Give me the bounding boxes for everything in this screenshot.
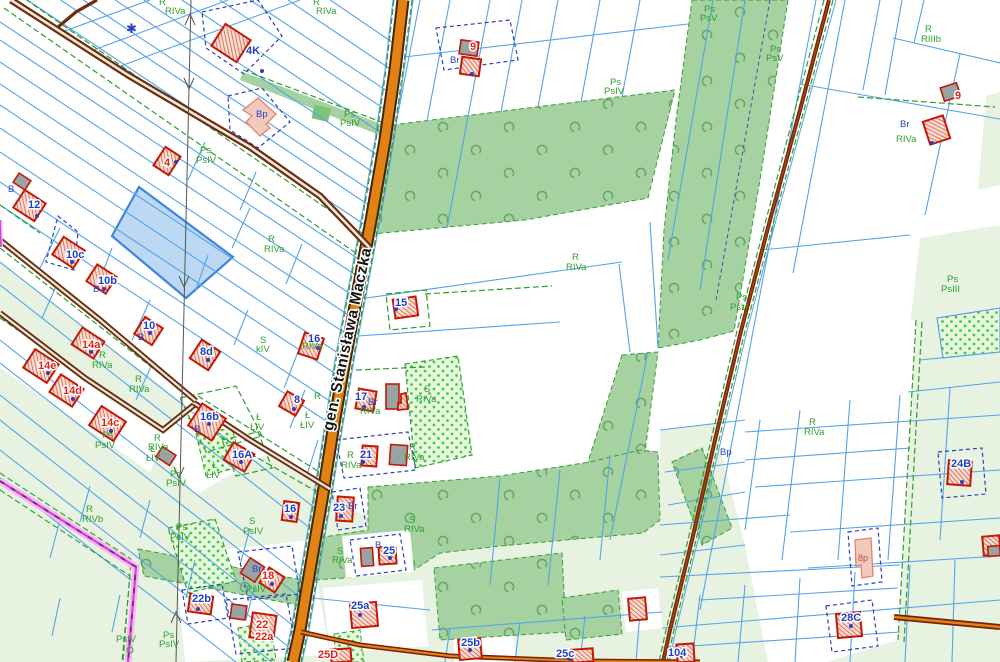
svg-text:Ps: Ps — [170, 469, 181, 480]
svg-text:12: 12 — [28, 199, 40, 211]
svg-text:10b: 10b — [98, 275, 117, 287]
svg-text:PsIV: PsIV — [243, 526, 264, 537]
svg-text:22b: 22b — [192, 593, 211, 605]
svg-text:Br: Br — [368, 397, 378, 408]
svg-text:RIVa: RIVa — [302, 341, 323, 352]
svg-text:8p: 8p — [858, 553, 868, 563]
svg-text:10: 10 — [143, 320, 155, 332]
svg-text:R: R — [86, 504, 93, 515]
svg-text:S: S — [409, 515, 415, 526]
svg-text:4K: 4K — [246, 45, 260, 57]
svg-text:16: 16 — [284, 503, 296, 515]
svg-text:22a: 22a — [255, 631, 274, 643]
svg-text:24B: 24B — [951, 458, 971, 470]
svg-text:S: S — [337, 546, 343, 557]
svg-text:Ł: Ł — [256, 412, 261, 423]
svg-text:B: B — [8, 184, 14, 195]
svg-text:R: R — [268, 234, 275, 245]
svg-text:8d: 8d — [200, 346, 213, 358]
svg-text:28C: 28C — [841, 612, 861, 624]
svg-text:B: B — [375, 540, 381, 551]
svg-text:Bp: Bp — [256, 109, 268, 120]
svg-text:R: R — [154, 433, 161, 444]
svg-text:Bp: Bp — [720, 447, 732, 458]
svg-text:Br: Br — [450, 55, 460, 66]
svg-text:PsIV: PsIV — [170, 532, 191, 543]
svg-text:16A: 16A — [232, 449, 252, 461]
svg-text:25D: 25D — [318, 649, 338, 661]
svg-text:14c: 14c — [101, 417, 119, 429]
svg-text:R: R — [314, 391, 321, 402]
svg-text:Ł: Ł — [150, 444, 155, 455]
svg-text:PsIV: PsIV — [246, 584, 267, 595]
svg-text:Ł: Ł — [212, 460, 217, 471]
svg-text:S: S — [424, 384, 430, 395]
svg-text:9: 9 — [470, 41, 476, 53]
svg-text:R: R — [159, 0, 166, 8]
svg-text:RIVa: RIVa — [804, 427, 825, 438]
svg-text:8: 8 — [294, 394, 300, 406]
svg-text:10c: 10c — [66, 249, 84, 261]
svg-text:ŁIV: ŁIV — [250, 422, 265, 433]
svg-text:17: 17 — [355, 391, 367, 403]
svg-text:PsIV: PsIV — [95, 440, 116, 451]
svg-text:RIVa: RIVa — [566, 262, 587, 273]
svg-text:104: 104 — [668, 647, 687, 659]
svg-text:Ps: Ps — [176, 522, 187, 533]
svg-text:25c: 25c — [556, 648, 574, 660]
svg-text:RIVa: RIVa — [416, 394, 437, 405]
svg-text:Ps: Ps — [947, 274, 958, 285]
svg-text:Ł: Ł — [305, 410, 310, 421]
svg-text:18: 18 — [262, 570, 274, 582]
svg-text:RIVa: RIVa — [341, 460, 362, 471]
svg-text:✱: ✱ — [126, 21, 137, 36]
svg-text:PsIII: PsIII — [941, 284, 960, 295]
svg-text:PsV: PsV — [730, 302, 748, 313]
svg-text:S: S — [249, 516, 255, 527]
svg-text:Ps: Ps — [163, 630, 174, 641]
svg-text:Br: Br — [900, 119, 910, 130]
svg-text:R: R — [925, 24, 932, 35]
svg-text:4: 4 — [164, 157, 171, 169]
svg-text:R: R — [99, 350, 106, 361]
svg-text:Ps: Ps — [736, 292, 747, 303]
svg-text:RIVa: RIVa — [896, 134, 917, 145]
svg-text:ŁIV: ŁIV — [300, 420, 315, 431]
svg-text:B: B — [93, 284, 99, 295]
svg-text:Ps: Ps — [704, 4, 715, 15]
svg-text:15: 15 — [395, 297, 407, 309]
svg-text:25b: 25b — [461, 637, 480, 649]
svg-text:RIVa: RIVa — [92, 360, 113, 371]
svg-text:RIVa: RIVa — [404, 452, 425, 463]
svg-text:ŁIV: ŁIV — [206, 470, 221, 481]
svg-text:RIIIb: RIIIb — [921, 34, 941, 45]
svg-text:R: R — [572, 252, 579, 263]
svg-text:Ps: Ps — [200, 145, 211, 156]
svg-text:RIVa: RIVa — [165, 6, 186, 17]
svg-text:Br: Br — [252, 564, 262, 575]
svg-text:25: 25 — [383, 545, 395, 557]
svg-text:PsIV: PsIV — [116, 634, 137, 645]
svg-text:14e: 14e — [38, 360, 56, 372]
svg-text:R: R — [409, 442, 416, 453]
svg-text:22: 22 — [256, 619, 268, 631]
svg-text:RIVa: RIVa — [264, 244, 285, 255]
svg-text:Ps: Ps — [610, 77, 621, 88]
svg-text:R: R — [313, 0, 320, 8]
svg-text:23: 23 — [333, 502, 345, 514]
svg-text:25a: 25a — [351, 600, 370, 612]
svg-text:Ps: Ps — [102, 430, 113, 441]
svg-text:S: S — [260, 335, 266, 346]
svg-text:Br: Br — [348, 501, 358, 512]
svg-text:R: R — [347, 450, 354, 461]
svg-text:RIVb: RIVb — [82, 514, 103, 525]
svg-text:14d: 14d — [63, 385, 82, 397]
svg-text:PsIV: PsIV — [196, 155, 217, 166]
svg-text:RIVa: RIVa — [129, 384, 150, 395]
svg-text:R: R — [135, 374, 142, 385]
svg-text:R: R — [809, 417, 816, 428]
svg-text:B: B — [194, 424, 200, 435]
svg-text:Ps: Ps — [770, 44, 781, 55]
svg-text:16b: 16b — [200, 411, 219, 423]
svg-text:B: B — [138, 332, 144, 343]
svg-text:9: 9 — [955, 90, 961, 102]
svg-text:Ps: Ps — [344, 109, 355, 120]
svg-text:21: 21 — [360, 449, 372, 461]
